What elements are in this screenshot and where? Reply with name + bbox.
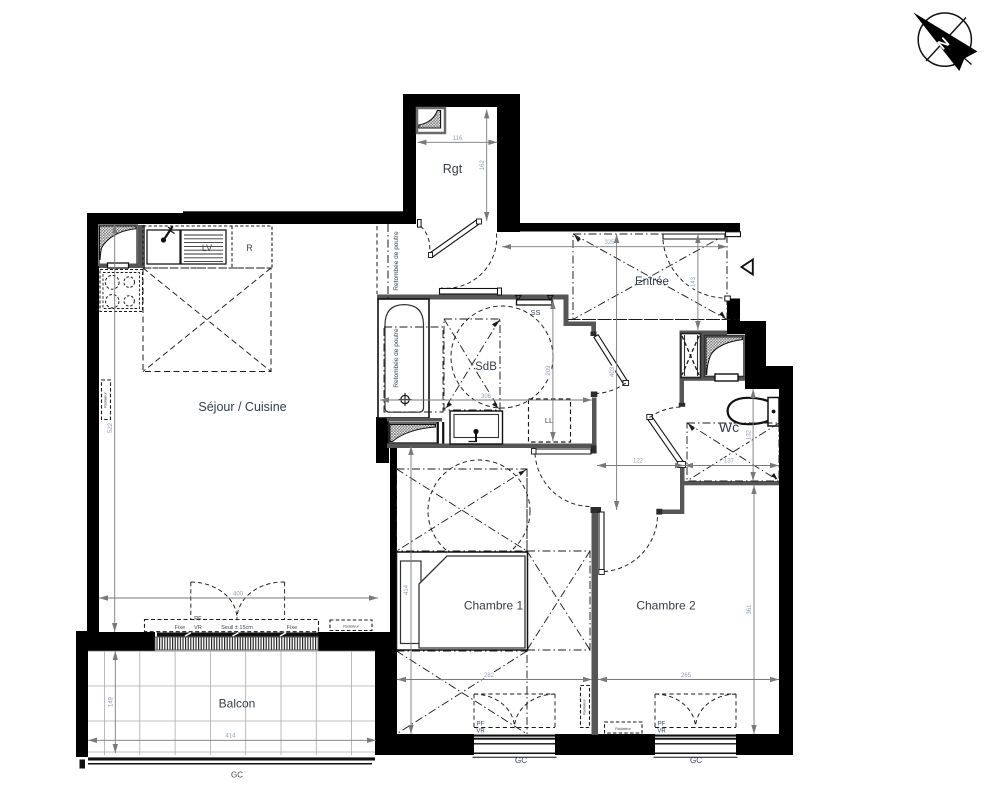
svg-text:143: 143 — [691, 276, 697, 287]
svg-text:LV: LV — [202, 243, 212, 253]
svg-text:Wc: Wc — [719, 419, 739, 435]
svg-text:209: 209 — [546, 365, 552, 376]
svg-text:162: 162 — [480, 160, 486, 171]
svg-text:Fixe: Fixe — [175, 625, 185, 631]
svg-text:522: 522 — [108, 422, 114, 433]
svg-text:400: 400 — [233, 592, 244, 598]
svg-text:PF: PF — [658, 722, 666, 728]
svg-text:Séjour / Cuisine: Séjour / Cuisine — [198, 400, 286, 414]
svg-text:Entrée: Entrée — [635, 276, 669, 288]
svg-text:137: 137 — [724, 459, 735, 465]
svg-text:414: 414 — [404, 584, 410, 595]
svg-text:Radiateur: Radiateur — [615, 727, 631, 731]
svg-text:282: 282 — [484, 673, 495, 679]
svg-text:LL: LL — [545, 416, 553, 425]
svg-text:PF: PF — [194, 617, 202, 623]
svg-text:403: 403 — [610, 366, 616, 377]
svg-text:Balcon: Balcon — [219, 697, 256, 711]
svg-text:414: 414 — [225, 734, 236, 740]
svg-text:122: 122 — [633, 459, 644, 465]
svg-text:GC: GC — [690, 756, 702, 765]
svg-text:Fixe: Fixe — [287, 625, 297, 631]
svg-text:325: 325 — [604, 240, 615, 246]
svg-text:GC: GC — [515, 756, 527, 765]
svg-text:VR: VR — [476, 729, 485, 735]
svg-text:VR: VR — [194, 625, 202, 631]
svg-text:GC: GC — [231, 771, 243, 780]
svg-text:Retombée de poutre: Retombée de poutre — [393, 231, 400, 291]
svg-text:Seuil ± 15cm: Seuil ± 15cm — [221, 625, 253, 631]
svg-text:116: 116 — [453, 136, 463, 142]
svg-text:Radiateur: Radiateur — [583, 698, 587, 714]
svg-text:Chambre 2: Chambre 2 — [636, 599, 696, 613]
svg-text:Radiateur: Radiateur — [343, 625, 359, 629]
svg-text:Rgt: Rgt — [443, 162, 463, 176]
svg-text:132: 132 — [746, 429, 752, 440]
svg-text:149: 149 — [109, 696, 115, 707]
svg-text:265: 265 — [681, 673, 692, 679]
svg-text:361: 361 — [747, 604, 753, 615]
svg-text:SdB: SdB — [475, 361, 497, 373]
svg-text:PF: PF — [477, 722, 485, 728]
svg-text:Chambre 1: Chambre 1 — [464, 599, 524, 613]
svg-text:Retombée de poutre: Retombée de poutre — [393, 328, 400, 388]
svg-text:VR: VR — [657, 729, 666, 735]
svg-text:306: 306 — [481, 394, 492, 400]
svg-text:Radiateur: Radiateur — [104, 391, 108, 407]
svg-text:R: R — [246, 243, 253, 253]
